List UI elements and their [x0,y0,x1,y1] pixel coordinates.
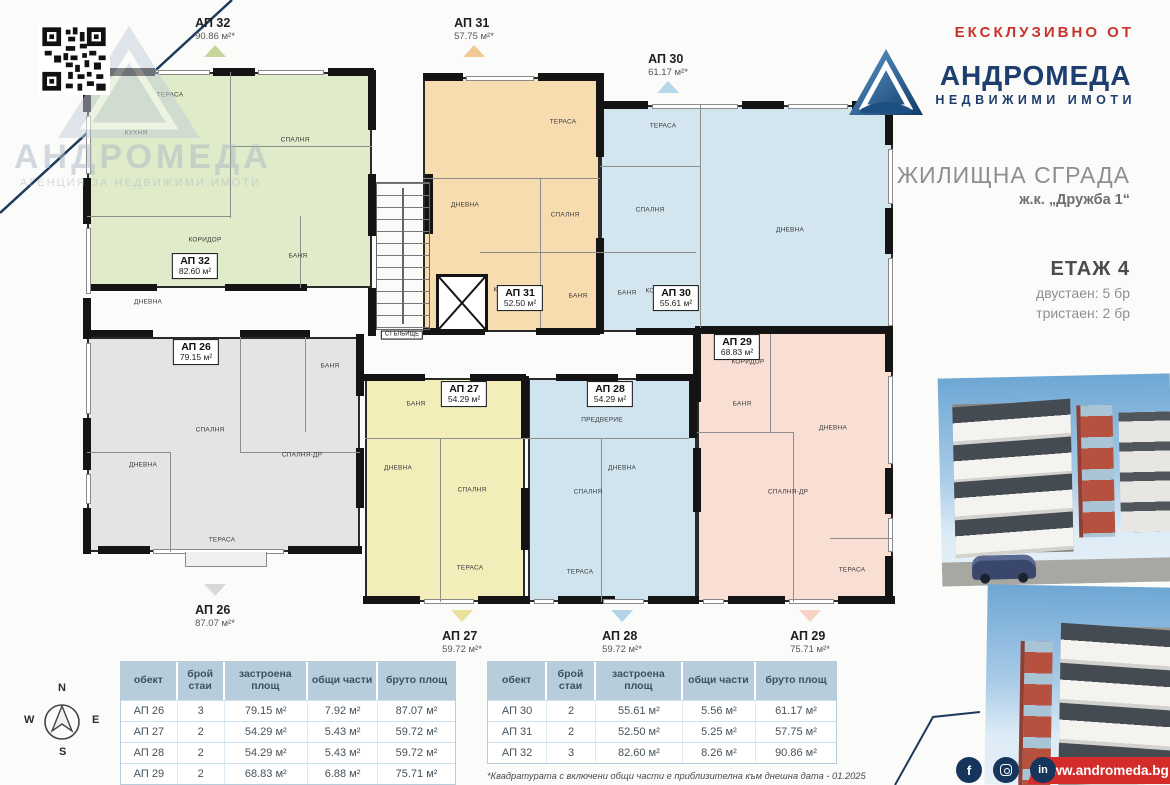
callout-triangle-icon [204,584,226,596]
callout-area: 59.72 м²* [442,644,452,655]
staircase-rail [402,188,404,324]
callout-number: АП 32 [195,16,201,31]
footnote: *Квадратурата с включени общи части е пр… [487,771,867,781]
wall-segment [423,73,463,81]
table-cell: 2 [547,721,596,742]
apartment-tag-area: 54.29 м² [448,395,480,405]
table-cell: 87.07 м² [378,700,455,721]
room-label: ТЕРАСА [550,119,577,126]
window [466,76,534,81]
table-header-cell: общи части [683,662,756,700]
room-partition [365,438,528,439]
room-label: СПАЛНЯ [551,212,580,219]
callout-area: 87.07 м²* [195,618,205,629]
table-row: АП 32382.60 м²8.26 м²90.86 м² [488,742,836,763]
table-cell: 2 [178,721,225,742]
wall-segment [83,508,91,554]
area-table-left: обектброй стаизастроена площобщи частибр… [120,661,456,785]
window [534,599,554,604]
callout-number: АП 31 [454,16,460,31]
callout-number: АП 26 [195,603,201,618]
table-cell: АП 32 [488,742,547,763]
compass-south: S [59,746,66,758]
table-header-cell: обект [121,662,178,700]
wall-segment [536,328,600,335]
table-cell: 7.92 м² [308,700,378,721]
room-label: БАНЯ [321,363,340,370]
table-cell: АП 26 [121,700,178,721]
room-label: ТЕРАСА [839,567,866,574]
table-header-cell: застроена площ [225,662,309,700]
wall-segment [596,73,604,157]
apartment-tag: АП 2679.15 м² [173,339,219,365]
table-header-cell: брой стаи [178,662,225,700]
room-label: БАНЯ [733,401,752,408]
wall-segment [83,178,91,224]
callout-triangle-icon [204,45,226,57]
table-header-cell: застроена площ [596,662,683,700]
room-partition [480,252,600,253]
table-cell: 2 [547,700,596,721]
wall-segment [213,68,255,76]
callout-triangle-icon [657,81,679,93]
room-partition [240,337,241,452]
table-cell: 79.15 м² [225,700,309,721]
window [86,343,91,414]
table-row: АП 28254.29 м²5.43 м²59.72 м² [121,742,455,763]
table-cell: АП 29 [121,763,178,784]
window [789,599,834,604]
table-cell: 2 [178,763,225,784]
wall-segment [225,284,307,291]
elevator-shaft [436,274,488,332]
wall-segment [728,596,785,604]
facebook-icon[interactable]: f [956,757,982,783]
compass-north: N [58,682,66,694]
window [86,116,91,174]
table-cell: 8.26 м² [683,742,756,763]
wall-segment [87,330,153,337]
compass-rose: N E S W [26,686,98,758]
room-label: ТЕРАСА [457,565,484,572]
table-cell: 3 [178,700,225,721]
wall-segment [521,376,529,438]
room-label: КОРИДОР [189,237,222,244]
room-partition [770,334,771,432]
brand-header: ЕКСКЛУЗИВНО ОТ АНДРОМЕДА НЕДВИЖИМИ ИМОТИ [847,24,1136,119]
wall-segment [368,174,376,236]
apartment-tag: АП 2854.29 м² [587,381,633,407]
apartment-ap-26 [87,337,360,552]
project-subtitle: ж.к. „Дружба 1“ [897,192,1130,208]
wall-segment [695,326,893,334]
room-label: СПАЛНЯ-ДР [768,489,808,496]
table-cell: 55.61 м² [596,700,683,721]
apartment-callout: АП 3061.17 м²* [648,52,688,99]
table-cell: 90.86 м² [756,742,836,763]
project-title: ЖИЛИЩНА СГРАДА [897,162,1130,189]
room-label: ДНЕВНА [129,462,157,469]
room-label: СПАЛНЯ [281,137,310,144]
window [888,376,893,464]
table-cell: 5.25 м² [683,721,756,742]
room-label: СПАЛНЯ [574,489,603,496]
wall-segment [98,546,150,554]
project-info: ЖИЛИЩНА СГРАДА ж.к. „Дружба 1“ ЕТАЖ 4 дв… [897,162,1130,321]
apartment-ap-27 [365,378,525,602]
wall-segment [600,101,648,109]
window [258,70,324,75]
table-header-row: обектброй стаизастроена площобщи частибр… [121,662,455,700]
room-partition [793,432,794,602]
table-cell: АП 27 [121,721,178,742]
wall-segment [838,596,895,604]
room-label: ДНЕВНА [608,465,636,472]
apartment-ap-29 [697,332,893,602]
table-cell: 6.88 м² [308,763,378,784]
room-label: ТЕРАСА [650,123,677,130]
wall-segment [521,488,529,550]
apartment-tag-area: 52.50 м² [504,299,536,309]
table-cell: АП 30 [488,700,547,721]
window [888,258,893,326]
wall-segment [689,376,697,438]
room-partition [170,452,171,552]
elevator-x-icon [439,277,485,329]
brand-row: АНДРОМЕДА НЕДВИЖИМИ ИМОТИ [847,47,1136,119]
table-cell: 61.17 м² [756,700,836,721]
apartment-tag-area: 79.15 м² [180,353,212,363]
apartment-callout: АП 2859.72 м²* [602,610,642,656]
wall-segment [363,596,420,604]
wall-segment [885,330,893,372]
apartment-callout: АП 3157.75 м²* [454,16,494,63]
unit-count-two-room: двустаен: 5 бр [897,285,1130,301]
callout-number: АП 28 [602,629,608,644]
room-label: БАНЯ [618,290,637,297]
callout-area: 90.86 м²* [195,31,205,42]
room-partition [440,438,441,602]
room-label: БАНЯ [569,293,588,300]
room-label: ТЕРАСА [209,537,236,544]
wall-segment [240,330,310,337]
instagram-glyph [1000,764,1012,776]
apartment-callout: АП 2759.72 м²* [442,610,482,656]
window [888,518,893,552]
wall-segment [885,468,893,514]
wall-segment [356,448,364,508]
wall-segment [363,374,425,381]
room-partition [230,146,372,147]
table-row: АП 31252.50 м²5.25 м²57.75 м² [488,721,836,742]
wall-segment [556,374,618,381]
exclusive-label: ЕКСКЛУЗИВНО ОТ [847,24,1134,41]
brand-text: АНДРОМЕДА НЕДВИЖИМИ ИМОТИ [935,60,1136,107]
room-label: СПАЛНЯ-ДР [282,452,322,459]
room-label: СПАЛНЯ [458,487,487,494]
window [703,599,724,604]
linkedin-icon[interactable]: in [1030,757,1056,783]
table-header-cell: общи части [308,662,378,700]
callout-triangle-icon [611,610,633,622]
wall-segment [368,288,376,336]
room-partition [87,216,230,217]
callout-number: АП 29 [790,629,796,644]
wall-segment [885,208,893,254]
instagram-icon[interactable] [993,757,1019,783]
apartment-ap-28 [528,378,697,602]
apartment-tag: АП 3152.50 м² [497,285,543,311]
qr-code [38,23,110,95]
apartment-tag: АП 2754.29 м² [441,381,487,407]
area-table-right: обектброй стаизастроена площобщи частибр… [487,661,837,764]
window [86,474,91,504]
room-label: СПАЛНЯ [636,207,665,214]
room-partition [830,538,893,539]
wall-segment [368,70,376,130]
table-cell: АП 31 [488,721,547,742]
apartment-ap-30 [600,105,893,332]
room-label: ДНЕВНА [384,465,412,472]
window [652,104,738,109]
floor-label: ЕТАЖ 4 [897,258,1130,281]
apartment-tag: АП 3055.61 м² [653,285,699,311]
callout-area: 57.75 м²* [454,31,464,42]
social-icons: fin [956,757,1056,783]
table-cell: 57.75 м² [756,721,836,742]
table-row: АП 29268.83 м²6.88 м²75.71 м² [121,763,455,784]
room-partition [600,252,696,253]
brand-triangle-icon [847,47,925,119]
room-partition [87,452,170,453]
website-url[interactable]: www.andromeda.bg [1041,763,1169,778]
unit-count-three-room: тристаен: 2 бр [897,305,1130,321]
room-label: ДНЕВНА [451,202,479,209]
wall-segment [742,101,784,109]
table-cell: 5.56 м² [683,700,756,721]
wall-segment [356,334,364,396]
table-cell: 2 [178,742,225,763]
callout-number: АП 27 [442,629,448,644]
compass-east: E [92,714,99,726]
room-partition [700,105,701,328]
window [788,104,848,109]
room-label: БАНЯ [407,401,426,408]
apartment-tag-area: 55.61 м² [660,299,692,309]
table-cell: 54.29 м² [225,721,309,742]
apartment-callout: АП 2975.71 м²* [790,610,830,656]
table-cell: 59.72 м² [378,721,455,742]
room-label: ДНЕВНА [776,227,804,234]
room-label: ТЕРАСА [567,569,594,576]
wall-segment [87,284,157,291]
callout-area: 75.71 м²* [790,644,800,655]
room-label: СПАЛНЯ [196,427,225,434]
table-row: АП 26379.15 м²7.92 м²87.07 м² [121,700,455,721]
callout-area: 61.17 м²* [648,67,658,78]
apartment-tag-area: 54.29 м² [594,395,626,405]
room-partition [601,438,602,602]
callout-triangle-icon [451,610,473,622]
table-cell: 3 [547,742,596,763]
wall-segment [478,596,530,604]
table-header-cell: бруто площ [378,662,455,700]
table-cell: 68.83 м² [225,763,309,784]
apartment-tag-area: 68.83 м² [721,348,753,358]
table-cell: 52.50 м² [596,721,683,742]
wall-segment [288,546,362,554]
brand-subtitle: НЕДВИЖИМИ ИМОТИ [935,93,1136,107]
room-label: ТЕРАСА [157,92,184,99]
table-header-cell: брой стаи [547,662,596,700]
callout-number: АП 30 [648,52,654,67]
apartment-tag: СТЪЛБИЩЕ [381,331,423,340]
wall-segment [636,328,696,335]
window [888,149,893,204]
brand-name: АНДРОМЕДА [935,60,1136,92]
wall-segment [636,374,693,381]
table-row: АП 27254.29 м²5.43 м²59.72 м² [121,721,455,742]
room-partition [230,72,231,218]
apartment-tag-number: СТЪЛБИЩЕ [385,332,419,339]
room-partition [697,432,793,433]
callout-area: 59.72 м²* [602,644,612,655]
apartment-tag-area: 82.60 м² [179,267,211,277]
room-label: КУХНЯ [125,130,148,137]
apartment-tag: АП 3282.60 м² [172,253,218,279]
wall-segment [648,596,699,604]
room-partition [600,166,700,167]
table-cell: АП 28 [121,742,178,763]
table-cell: 59.72 м² [378,742,455,763]
callout-triangle-icon [463,45,485,57]
room-partition [528,438,689,439]
table-header-cell: обект [488,662,547,700]
room-label: ПРЕДВЕРИЕ [581,417,623,424]
window [86,228,91,294]
window [424,599,474,604]
room-label: ДНЕВНА [134,299,162,306]
table-cell: 54.29 м² [225,742,309,763]
table-cell: 5.43 м² [308,742,378,763]
wall-segment [693,448,701,512]
apartment-callout: АП 2687.07 м²* [195,584,235,630]
table-header-cell: бруто площ [756,662,836,700]
room-label: БАНЯ [289,253,308,260]
wall-segment [538,73,602,81]
table-row: АП 30255.61 м²5.56 м²61.17 м² [488,700,836,721]
table-cell: 5.43 м² [308,721,378,742]
flyer-canvas: АНДРОМЕДА АГЕНЦИЯ ЗА НЕДВИЖИМИ ИМОТИ [0,0,1170,785]
room-label: ДНЕВНА [819,425,847,432]
balcony-rail [185,552,267,567]
room-partition [305,337,306,432]
table-cell: 75.71 м² [378,763,455,784]
callout-triangle-icon [799,610,821,622]
window [158,70,210,75]
wall-segment [470,374,526,381]
apartment-tag: АП 2968.83 м² [714,334,760,360]
wall-segment [83,418,91,470]
table-cell: 82.60 м² [596,742,683,763]
table-header-row: обектброй стаизастроена площобщи частибр… [488,662,836,700]
room-partition [423,178,600,179]
compass-west: W [24,714,34,726]
apartment-callout: АП 3290.86 м²* [195,16,235,63]
window [603,599,644,604]
